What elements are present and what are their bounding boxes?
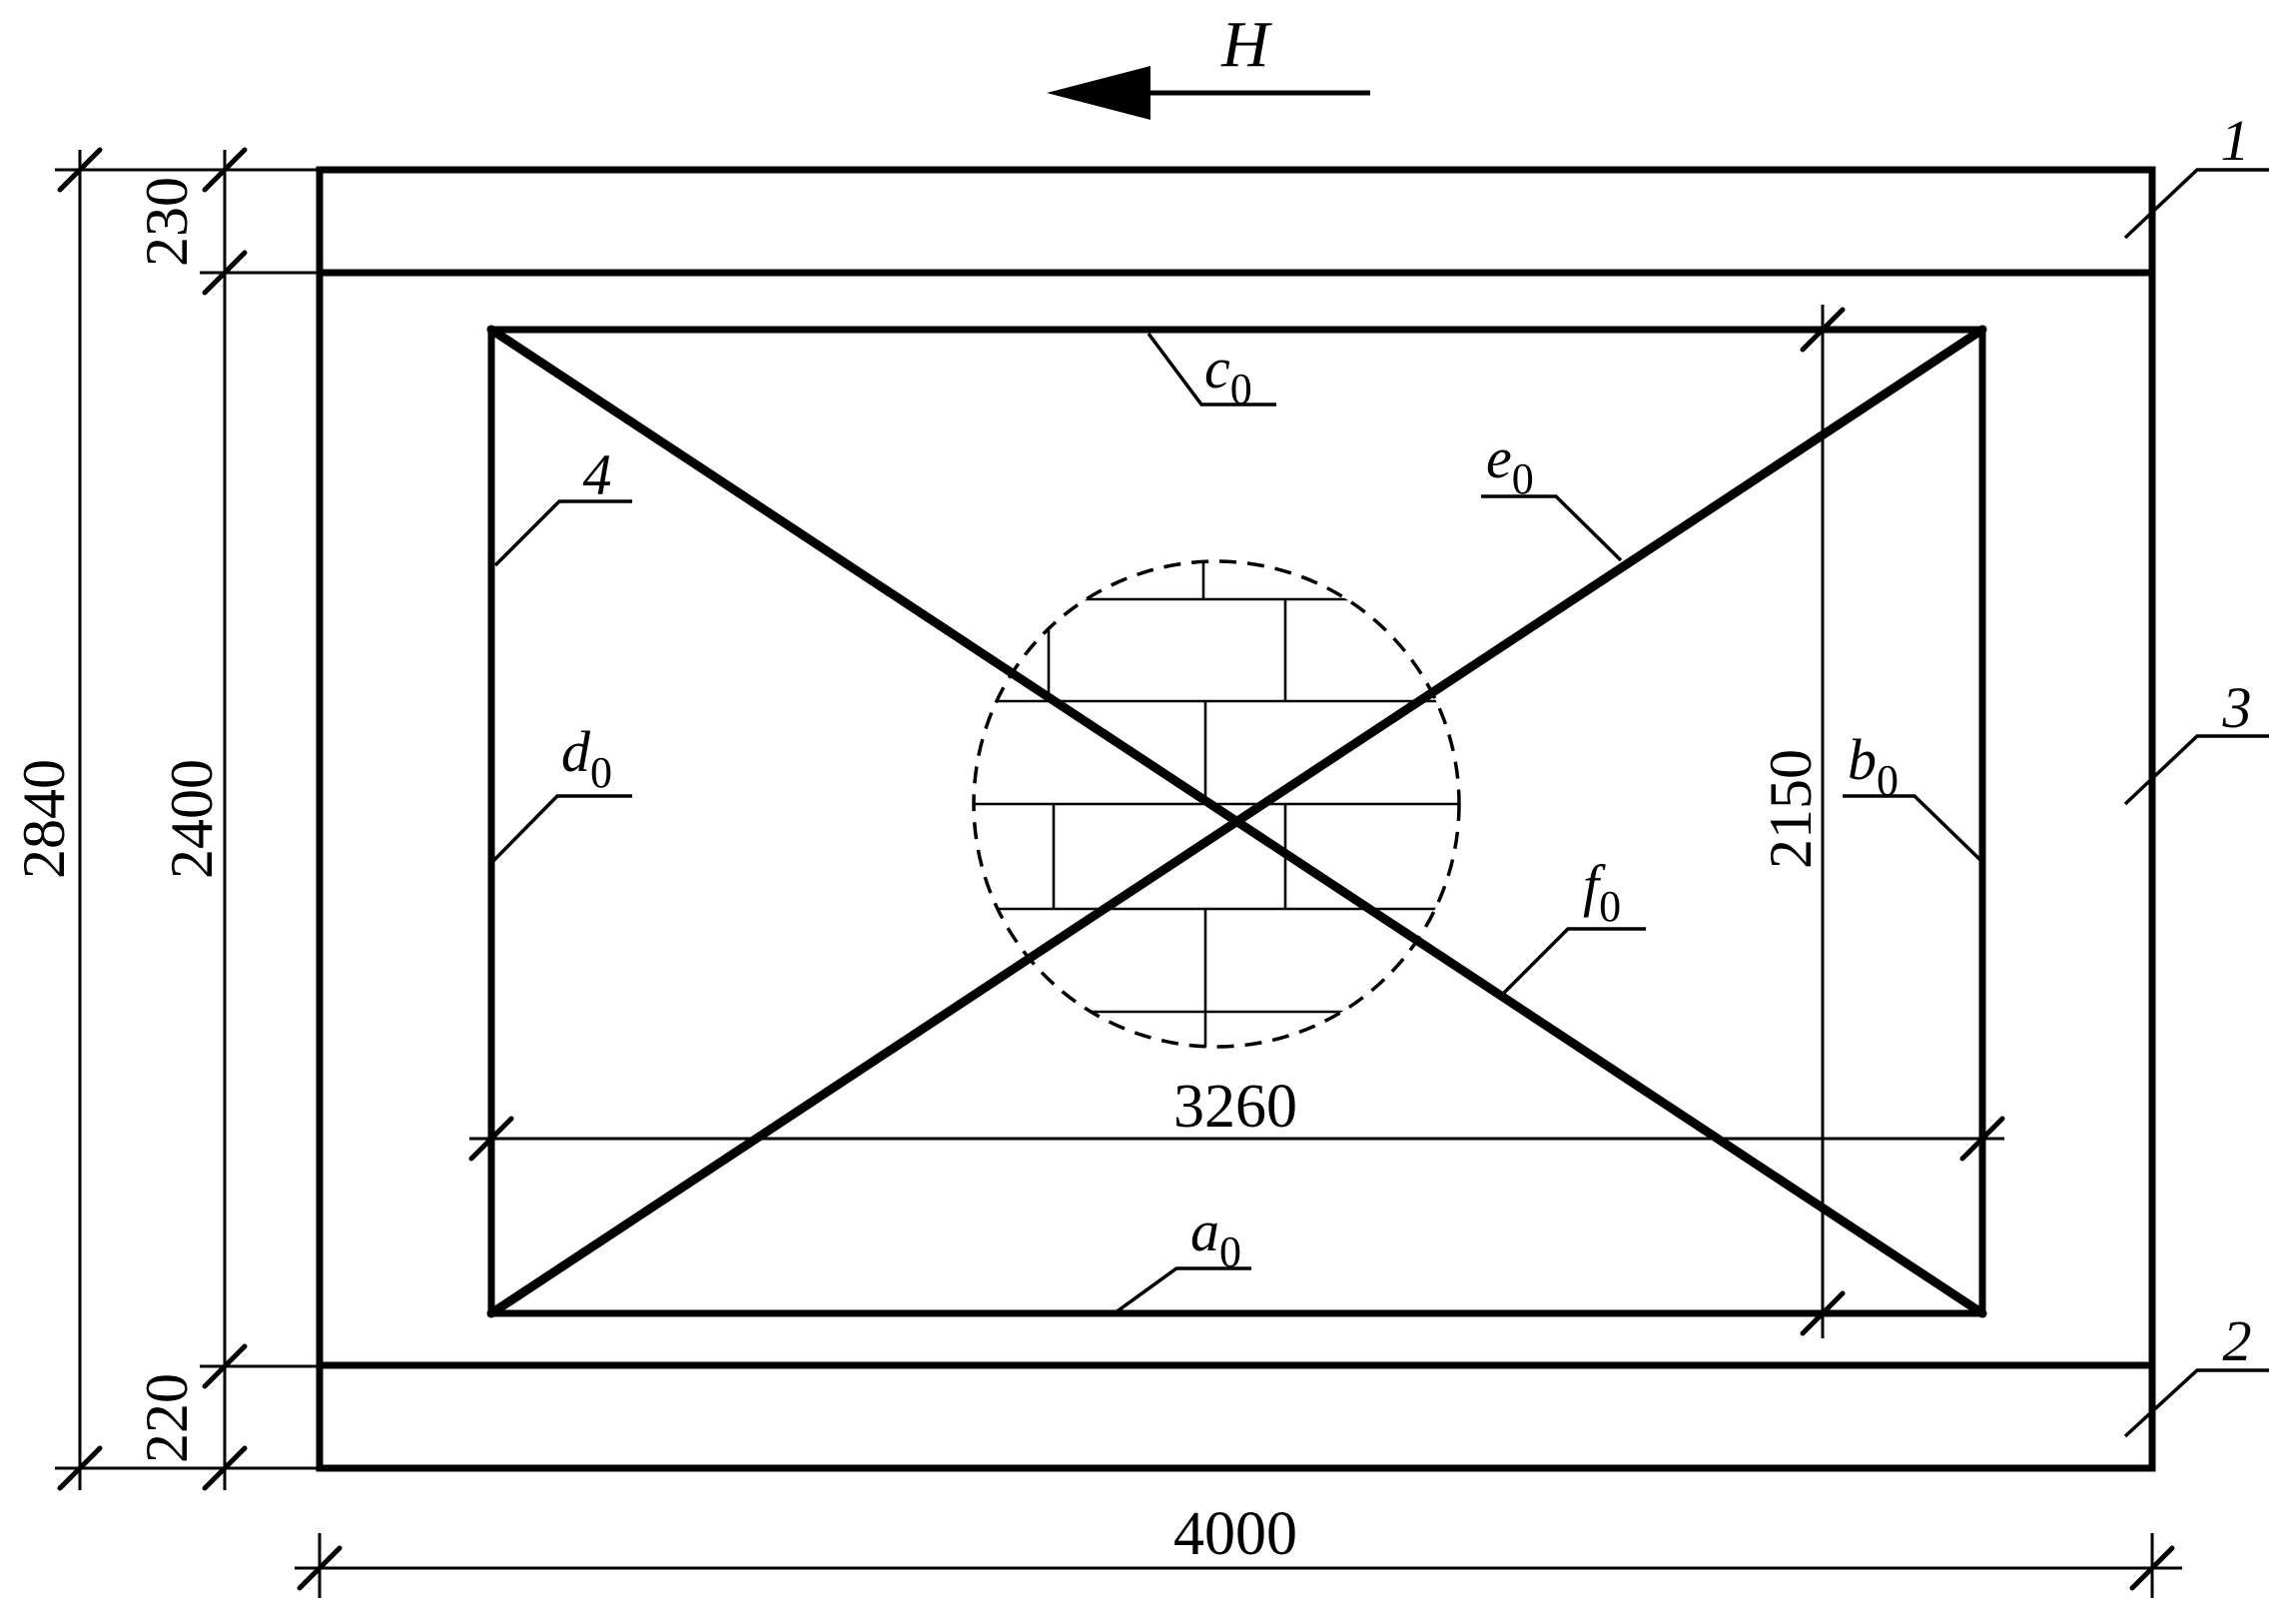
gauge-label-b0: b0	[1848, 727, 1899, 805]
gauge-label-e0: e0	[1486, 425, 1534, 503]
dim-frame-height: 2150	[1758, 749, 1824, 869]
part-label-frame: 4	[583, 442, 612, 507]
engineering-drawing: H 2840 2400 230 220 4000 3260 2150	[0, 0, 2288, 1624]
dim-overall-width: 4000	[1173, 1500, 1297, 1568]
leader-part-2	[2125, 1370, 2269, 1436]
leader-gauge-b	[1843, 796, 1980, 860]
bottom-beam	[320, 1365, 2152, 1468]
gauge-label-f0: f0	[1583, 853, 1621, 931]
dimension-lines	[80, 150, 2182, 1568]
dim-frame-width: 3260	[1173, 1073, 1297, 1141]
leader-gauge-f	[1504, 929, 1646, 993]
dim-clear-height: 2400	[159, 759, 225, 879]
dim-top-beam-depth: 230	[134, 177, 200, 267]
load-arrow-head	[1047, 66, 1150, 120]
dim-overall-height: 2840	[11, 759, 77, 879]
gauge-label-d0: d0	[561, 719, 612, 797]
tick-marks	[60, 150, 2172, 1588]
part-label-bottom-beam: 2	[2223, 1308, 2252, 1373]
leader-gauge-e	[1481, 496, 1621, 560]
extension-lines	[55, 170, 2152, 1598]
load-label: H	[1220, 8, 1272, 81]
part-label-panel: 3	[2222, 675, 2252, 740]
load-arrow: H	[1047, 8, 1370, 120]
gauge-label-a0: a0	[1190, 1199, 1241, 1276]
part-label-top-beam: 1	[2221, 108, 2250, 173]
leader-part-3	[2125, 736, 2269, 804]
leader-part-1	[2125, 170, 2269, 238]
top-beam	[320, 170, 2152, 273]
leader-part-4	[495, 501, 632, 565]
dim-bottom-beam-depth: 220	[134, 1373, 200, 1463]
gauge-label-c0: c0	[1204, 336, 1252, 413]
leader-gauge-d	[493, 796, 632, 861]
